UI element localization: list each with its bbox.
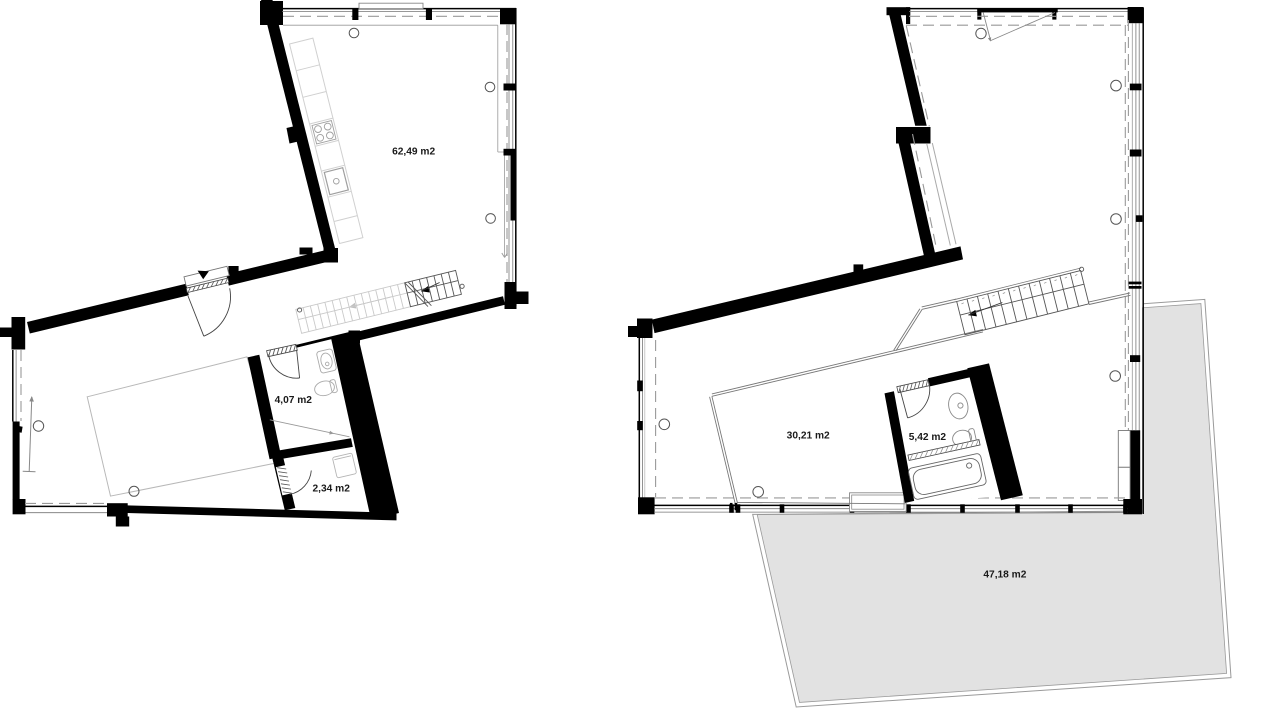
svg-text:4,07 m2: 4,07 m2 <box>275 395 313 406</box>
svg-text:2,34 m2: 2,34 m2 <box>313 484 351 495</box>
svg-text:62,49 m2: 62,49 m2 <box>392 147 435 158</box>
svg-text:47,18 m2: 47,18 m2 <box>983 570 1026 581</box>
svg-text:5,42 m2: 5,42 m2 <box>909 432 947 443</box>
svg-text:30,21 m2: 30,21 m2 <box>787 430 830 441</box>
